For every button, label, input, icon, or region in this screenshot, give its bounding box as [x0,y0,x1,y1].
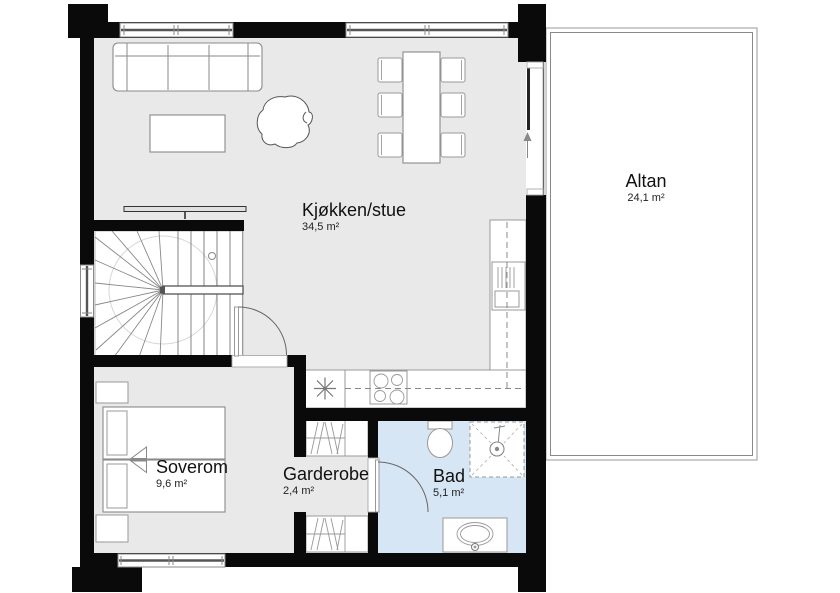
room-area: 5,1 m² [433,488,465,500]
refrigerator-symbol [305,370,345,408]
vanity-sink [443,518,507,552]
room-label-bathroom: Bad 5,1 m² [433,467,465,500]
room-name: Kjøkken/stue [302,201,406,220]
shower [470,422,524,477]
window-left-stair [81,265,94,317]
corner-column [518,4,546,62]
nightstand [96,515,128,542]
room-area: 2,4 m² [283,486,369,498]
room-area: 34,5 m² [302,222,406,234]
room-name: Bad [433,467,465,486]
wall-bedroom-top [94,355,232,367]
toilet [428,421,453,458]
room-name: Altan [596,172,696,191]
floor-plan-drawing [0,0,840,593]
room-label-balcony: Altan 24,1 m² [596,172,696,205]
wall-stair [94,220,244,231]
room-label-kitchen-living: Kjøkken/stue 34,5 m² [302,201,406,234]
room-label-bedroom: Soverom 9,6 m² [156,458,228,491]
wall-bath-left [368,421,378,460]
floor-plan: Kjøkken/stue 34,5 m² Altan 24,1 m² Sover… [0,0,840,593]
window-bottom-bedroom [118,554,225,567]
corner-column [518,567,546,592]
nightstand [96,382,128,403]
corner-column [72,567,142,592]
room-name: Garderobe [283,465,369,484]
wall-kitchen-bath [294,408,526,421]
room-area: 24,1 m² [596,193,696,205]
kitchen-sink [492,262,525,310]
stove [370,371,407,404]
room-area: 9,6 m² [156,479,228,491]
coffee-table [150,115,225,152]
staircase [95,231,243,357]
stair-landing-rail [163,286,243,294]
window-top-dining [346,23,508,37]
sliding-door [524,62,546,195]
stair-post [209,253,216,260]
corner-column [68,4,108,38]
wall-right [526,195,546,567]
window-top-living [120,23,233,37]
plant [257,96,312,148]
sofa [113,43,262,91]
room-name: Soverom [156,458,228,477]
room-label-wardrobe: Garderobe 2,4 m² [283,465,369,498]
balcony-deck [546,28,757,460]
dining-table [403,52,440,163]
appliance-star-icon [314,378,336,400]
